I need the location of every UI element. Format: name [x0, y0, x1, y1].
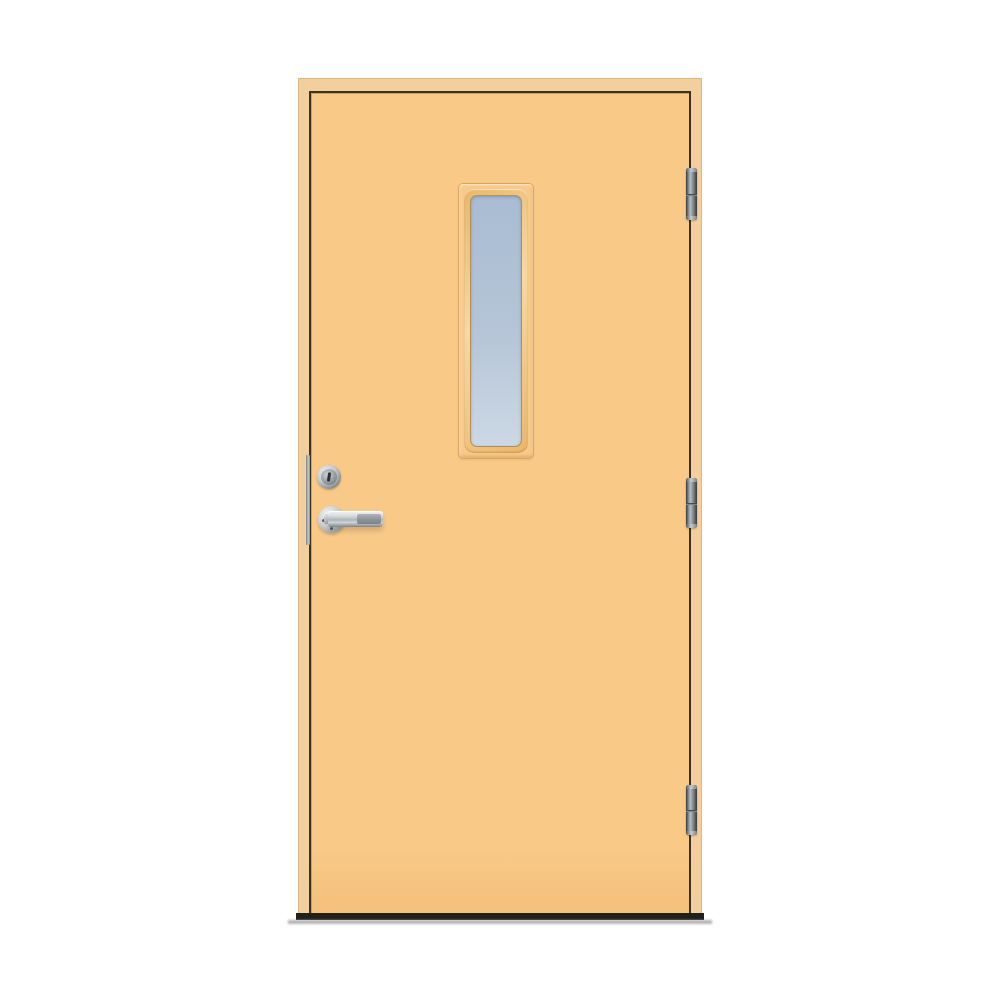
hinge-bottom — [686, 785, 697, 835]
hinge-top — [686, 168, 697, 220]
door-threshold — [296, 913, 704, 920]
door-assembly — [298, 78, 702, 920]
door-window-molding — [458, 183, 534, 459]
door-lever-handle — [328, 511, 383, 527]
lock-cylinder — [317, 465, 341, 489]
hinge-cap — [686, 524, 697, 528]
door-window-glass — [470, 195, 522, 447]
product-photo-stage — [0, 0, 1000, 1000]
hinge-middle — [686, 478, 697, 528]
hinge-cap — [686, 216, 697, 220]
door-window-inner-bevel — [464, 189, 528, 453]
threshold-shadow — [288, 920, 712, 924]
lock-cylinder-core — [321, 469, 337, 485]
rose-screw — [330, 527, 333, 530]
keyhole-icon — [327, 472, 331, 481]
lock-edge-faceplate — [306, 455, 310, 545]
hinge-cap — [686, 168, 697, 172]
hinge-knuckle-seam — [686, 194, 697, 196]
hinge-cap — [686, 785, 697, 789]
hinge-cap — [686, 831, 697, 835]
hinge-knuckle-seam — [686, 810, 697, 812]
hinge-cap — [686, 478, 697, 482]
lever-reflection — [357, 514, 381, 524]
hinge-knuckle-seam — [686, 503, 697, 505]
